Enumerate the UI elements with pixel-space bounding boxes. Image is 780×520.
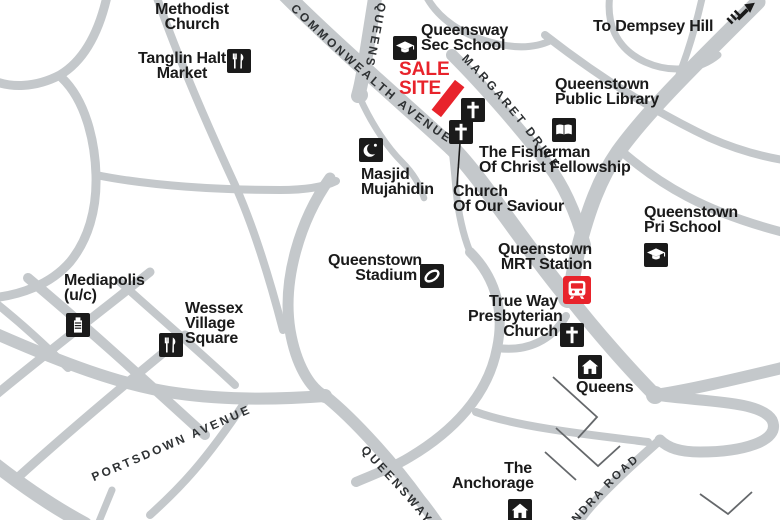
- stadium-icon: [420, 264, 444, 288]
- poi-to-dempsey-hill: To Dempsey Hill: [593, 19, 713, 34]
- church-icon: [449, 120, 473, 144]
- poi-church-of-our-saviour: Church Of Our Saviour: [453, 184, 564, 214]
- road-loop-se: [655, 395, 773, 452]
- poi-queenstown-mrt-station: Queenstown MRT Station: [498, 242, 592, 272]
- poi-masjid-mujahidin: Masjid Mujahidin: [361, 167, 434, 197]
- road-tanglin-1: [0, 0, 108, 85]
- food-icon: [227, 49, 251, 73]
- poi-methodist-church: Methodist Church: [128, 2, 256, 32]
- poi-the-anchorage: The Anchorage: [452, 461, 532, 491]
- road-label-portsdown: PORTSDOWN AVENUE: [90, 402, 254, 484]
- house-icon: [508, 499, 532, 520]
- queenstown-locator-map: COMMONWEALTH AVENUE QUEENSWAY MARGARET D…: [0, 0, 780, 520]
- poi-queensway-sec-school: Queensway Sec School: [421, 23, 508, 53]
- church-icon: [461, 98, 485, 122]
- library-icon: [552, 118, 576, 142]
- poi-fisherman-of-christ: The Fisherman Of Christ Fellowship: [479, 145, 631, 175]
- road-corner-sw: [0, 462, 85, 520]
- church-icon: [560, 323, 584, 347]
- house-icon: [578, 355, 602, 379]
- school-icon: [393, 36, 417, 60]
- road-east: [655, 368, 780, 395]
- mosque-icon: [359, 138, 383, 162]
- food-icon: [159, 333, 183, 357]
- poi-queens: Queens: [576, 380, 634, 395]
- poi-queenstown-public-library: Queenstown Public Library: [555, 77, 659, 107]
- poi-queenstown-pri-school: Queenstown Pri School: [644, 205, 738, 235]
- school-icon: [644, 243, 668, 267]
- road-stub-s: [98, 490, 112, 520]
- road-label-alexandra: ALEXANDRA ROAD: [538, 453, 642, 520]
- road-tanglin-2: [0, 78, 96, 298]
- poi-wessex-village-square: Wessex Village Square: [185, 301, 243, 347]
- poi-queenstown-stadium: Queenstown Stadium: [328, 253, 417, 283]
- road-queensway-bottom: [325, 396, 445, 520]
- poi-mediapolis: Mediapolis (u/c): [64, 273, 145, 303]
- poi-true-way-presbyterian: True Way Presbyterian Church: [468, 294, 558, 340]
- poi-tanglin-halt-market: Tanglin Halt Market: [128, 51, 236, 81]
- mrt-icon: [563, 276, 591, 304]
- road-stadium-west-loop: [288, 178, 330, 396]
- sale-site-label: SALE SITE: [399, 61, 450, 98]
- building-icon: [66, 313, 90, 337]
- road-tanglin-4: [96, 175, 336, 190]
- road-lower-connector: [476, 412, 648, 442]
- arrow-icon: [723, 1, 757, 31]
